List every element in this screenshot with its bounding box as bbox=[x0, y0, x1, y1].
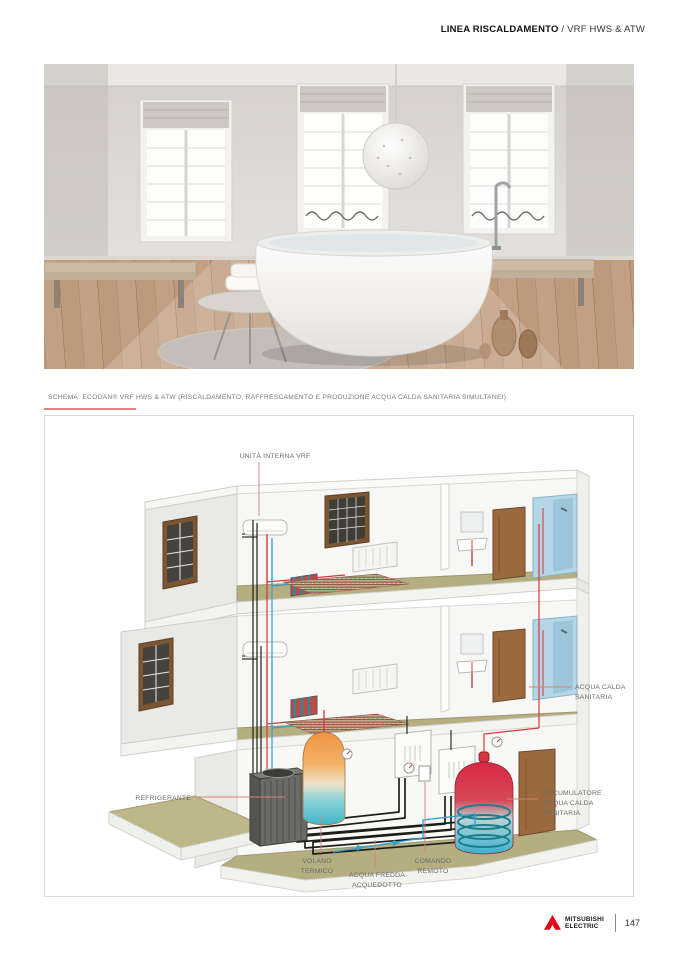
label-comando-1: COMANDO bbox=[415, 858, 452, 865]
label-accumulatore-3: SANITARIA bbox=[543, 810, 580, 817]
photo-ceiling bbox=[44, 64, 634, 86]
mitsubishi-logo-icon bbox=[544, 915, 561, 932]
schema-box: UNITÀ INTERNA VRF ACQUA CALDA SANITARIA … bbox=[44, 415, 634, 897]
label-accumulatore-2: ACQUA CALDA bbox=[543, 800, 594, 807]
vrf-wall-unit-2 bbox=[243, 642, 287, 657]
label-refrigerante: REFRIGERANTE bbox=[135, 795, 191, 802]
label-unita-interna-vrf: UNITÀ INTERNA VRF bbox=[240, 451, 311, 460]
page-footer: MITSUBISHI ELECTRIC 147 bbox=[544, 910, 640, 936]
brand-line2: ELECTRIC bbox=[565, 923, 604, 930]
page-number: 147 bbox=[625, 918, 640, 928]
schema-title: SCHEMA: ECODAN® VRF HWS & ATW (RISCALDAM… bbox=[48, 394, 628, 401]
brand-text: MITSUBISHI ELECTRIC bbox=[565, 916, 604, 930]
label-acqua-fredda-1: ACQUA FREDDA bbox=[349, 872, 405, 879]
partition-wall-2 bbox=[441, 606, 449, 712]
label-acqua-calda-1: ACQUA CALDA bbox=[575, 684, 626, 691]
label-volano-1: VOLANO bbox=[302, 858, 332, 865]
label-accumulatore-1: ACCUMULATORE bbox=[543, 790, 602, 797]
photo-window-right bbox=[463, 84, 555, 234]
fancoil-2 bbox=[291, 696, 317, 718]
system-diagram: UNITÀ INTERNA VRF ACQUA CALDA SANITARIA … bbox=[45, 416, 633, 896]
label-acqua-fredda-2: ACQUEDOTTO bbox=[352, 882, 402, 889]
bathroom-photo-art bbox=[44, 64, 634, 369]
header-subtitle: / VRF HWS & ATW bbox=[559, 24, 645, 35]
page-header: LINEA RISCALDAMENTO / VRF HWS & ATW bbox=[441, 24, 645, 35]
vrf-wall-unit-1 bbox=[243, 520, 287, 535]
bathroom-photo bbox=[44, 64, 634, 369]
label-acqua-calda-2: SANITARIA bbox=[575, 694, 612, 701]
door-2 bbox=[493, 629, 525, 702]
door-1 bbox=[493, 507, 525, 580]
label-comando-2: REMOTO bbox=[418, 868, 449, 875]
label-volano-2: TERMICO bbox=[301, 868, 334, 875]
remote-controller bbox=[419, 766, 430, 781]
catalog-page: LINEA RISCALDAMENTO / VRF HWS & ATW bbox=[0, 0, 678, 959]
brand-line1: MITSUBISHI bbox=[565, 916, 604, 923]
title-underline bbox=[44, 408, 136, 410]
header-category: LINEA RISCALDAMENTO bbox=[441, 24, 559, 35]
outdoor-unit bbox=[250, 768, 307, 846]
footer-divider bbox=[615, 914, 616, 932]
partition-wall-1 bbox=[441, 484, 449, 570]
photo-window-left bbox=[140, 100, 232, 242]
